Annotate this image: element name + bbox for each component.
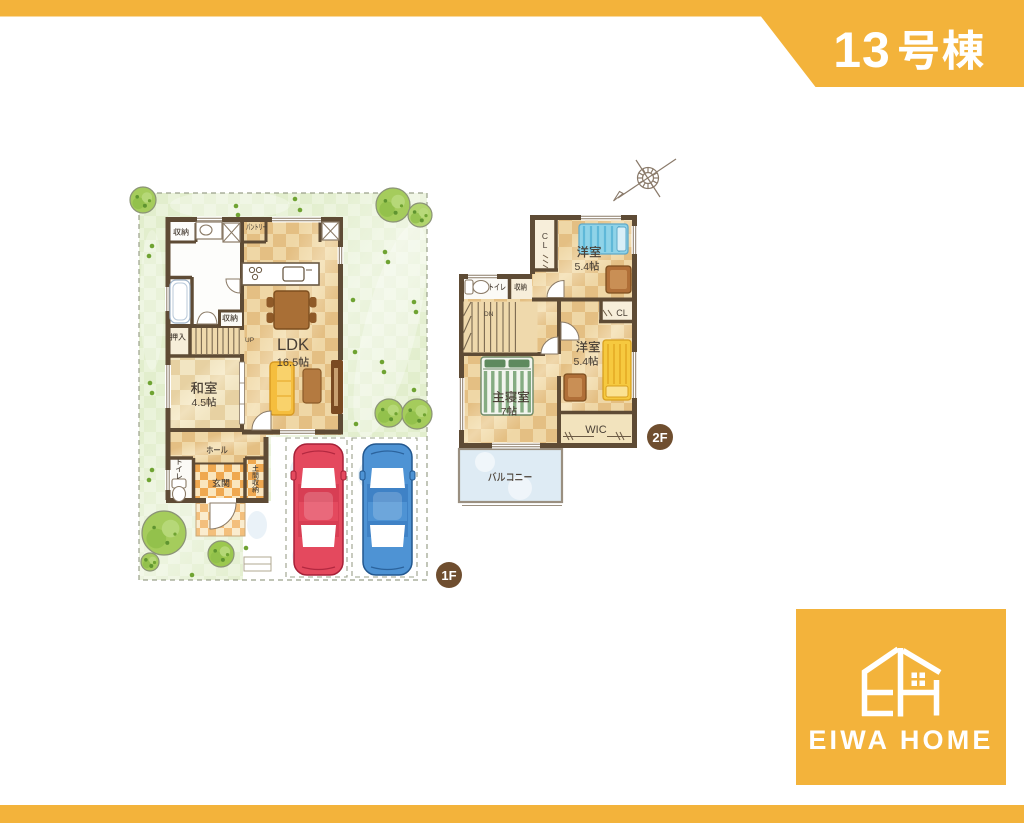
svg-text:2F: 2F — [652, 430, 667, 445]
svg-text:EIWA HOME: EIWA HOME — [808, 725, 993, 755]
svg-text:5.4: 5.4 — [575, 261, 590, 273]
svg-text:16.5: 16.5 — [277, 357, 298, 369]
svg-text:L: L — [543, 240, 548, 250]
svg-text:13: 13 — [833, 22, 891, 78]
svg-text:4.5: 4.5 — [192, 397, 207, 409]
svg-text:WIC: WIC — [585, 424, 606, 436]
svg-text:DN: DN — [484, 311, 494, 318]
svg-text:5.4: 5.4 — [574, 356, 589, 368]
svg-text:UP: UP — [245, 337, 254, 344]
svg-text:1F: 1F — [441, 568, 456, 583]
svg-text:CL: CL — [616, 308, 628, 318]
svg-text:7: 7 — [501, 406, 507, 418]
svg-text:LDK: LDK — [277, 336, 309, 354]
